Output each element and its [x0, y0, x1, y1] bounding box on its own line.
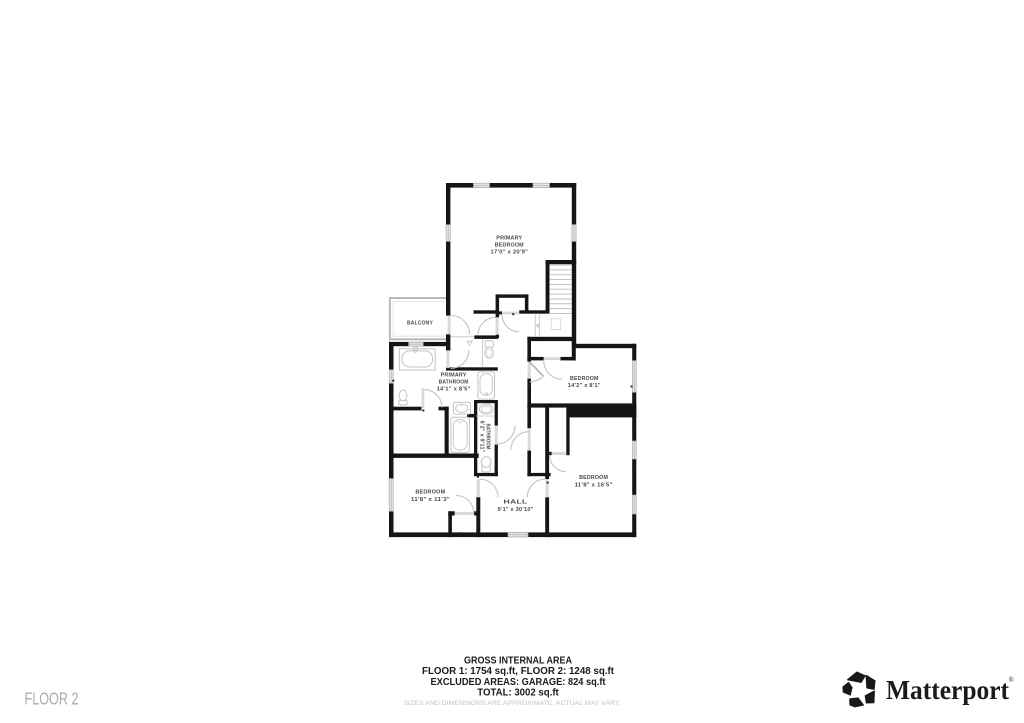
- svg-text:PRIMARY: PRIMARY: [496, 235, 522, 241]
- svg-text:14’1" x 8’5": 14’1" x 8’5": [437, 386, 471, 392]
- svg-text:FLOOR 2: FLOOR 2: [25, 688, 79, 708]
- svg-text:Matterport: Matterport: [886, 675, 1009, 705]
- svg-text:9’1" x 30’10": 9’1" x 30’10": [498, 507, 534, 513]
- svg-text:BEDROOM: BEDROOM: [579, 475, 608, 481]
- svg-text:PRIMARY: PRIMARY: [441, 372, 467, 378]
- svg-text:BALCONY: BALCONY: [407, 321, 433, 327]
- svg-text:BEDROOM: BEDROOM: [570, 376, 599, 382]
- svg-text:6’2" x 9’11": 6’2" x 9’11": [478, 421, 484, 453]
- svg-text:TOTAL: 3002 sq.ft: TOTAL: 3002 sq.ft: [477, 687, 559, 698]
- svg-text:SIZES AND DIMENSIONS ARE APPRO: SIZES AND DIMENSIONS ARE APPROXIMATE, AC…: [404, 700, 621, 707]
- svg-text:GROSS INTERNAL AREA: GROSS INTERNAL AREA: [464, 656, 573, 667]
- svg-text:BEDROOM: BEDROOM: [495, 242, 524, 248]
- svg-text:®: ®: [1009, 676, 1015, 684]
- svg-text:BATHROOM: BATHROOM: [439, 379, 469, 385]
- svg-text:11’8" x 16’5": 11’8" x 16’5": [575, 483, 613, 489]
- svg-text:BEDROOM: BEDROOM: [415, 489, 445, 495]
- svg-text:FLOOR 1: 1754 sq.ft, FLOOR 2:: FLOOR 1: 1754 sq.ft, FLOOR 2: 1248 sq.ft: [422, 666, 615, 677]
- svg-text:EXCLUDED AREAS: GARAGE: 824 sq: EXCLUDED AREAS: GARAGE: 824 sq.ft: [431, 677, 607, 688]
- svg-text:17’0" x 20’9": 17’0" x 20’9": [491, 250, 529, 256]
- svg-text:11’8" x 11’3": 11’8" x 11’3": [411, 497, 450, 503]
- svg-text:BATHROOM: BATHROOM: [484, 424, 490, 450]
- svg-text:14’2" x 8’1": 14’2" x 8’1": [568, 383, 601, 389]
- svg-text:HALL: HALL: [504, 500, 528, 506]
